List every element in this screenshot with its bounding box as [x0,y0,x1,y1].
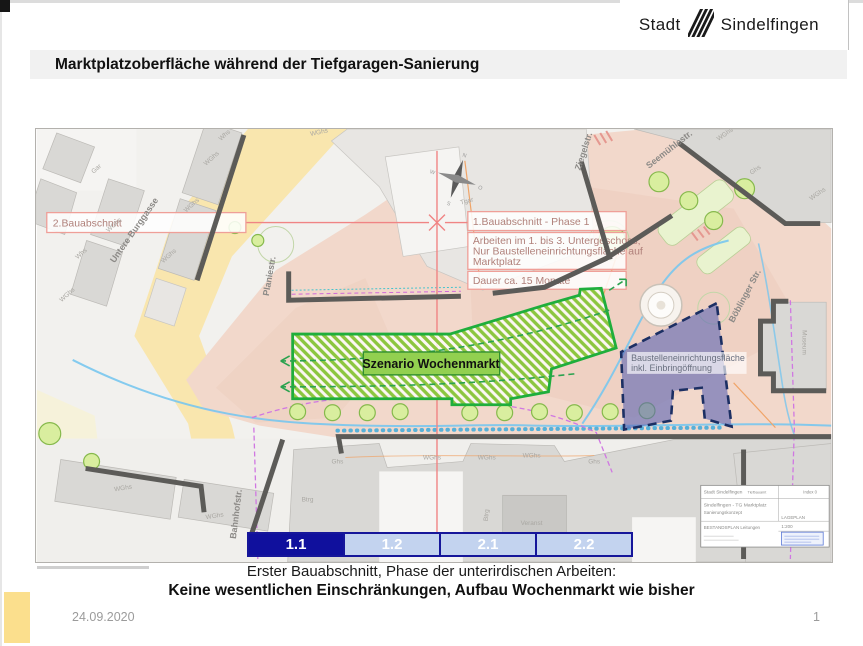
page-title: Marktplatzoberfläche während der Tiefgar… [55,56,479,74]
svg-text:inkl. Einbringöffnung: inkl. Einbringöffnung [631,363,712,373]
zone-wochenmarkt-label: Szenario Wochenmarkt [362,352,499,375]
logo-word-stadt: Stadt [639,15,681,35]
phase-box-2-2: 2.2 [535,532,633,557]
slide-left-border [0,0,2,646]
svg-text:WGhs: WGhs [523,452,541,459]
svg-text:Veranst: Veranst [521,520,543,527]
phase-box-2-1: 2.1 [439,532,537,557]
caption-line-2: Keine wesentlichen Einschränkungen, Aufb… [0,582,863,600]
svg-text:WGhs: WGhs [478,454,496,461]
logo-word-sindelfingen: Sindelfingen [721,15,819,35]
svg-text:Baustelleneinrichtungsfläche: Baustelleneinrichtungsfläche [631,353,745,363]
slide: Stadt Sindelfingen Marktplatzoberfläche … [0,0,863,646]
svg-text:Szenario Wochenmarkt: Szenario Wochenmarkt [362,357,499,371]
fountain [640,284,682,326]
zone-baustelle-label: Baustelleneinrichtungsfläche inkl. Einbr… [627,352,746,374]
phase-bar: 1.1 1.2 2.1 2.2 [247,532,633,557]
slide-corner-mark [0,0,10,12]
svg-text:1:200: 1:200 [781,524,793,529]
svg-text:Stadt Sindelfingen: Stadt Sindelfingen [704,489,743,495]
svg-text:Tiefbauamt: Tiefbauamt [748,490,768,494]
svg-text:Sanierungskonzept: Sanierungskonzept [704,510,743,515]
caption-line-1: Erster Bauabschnitt, Phase der unterirdi… [0,563,863,580]
svg-text:Index 0: Index 0 [803,489,817,494]
footer-date: 24.09.2020 [72,610,135,624]
logo-hatch-icon [688,8,714,43]
plan-titleblock: Stadt Sindelfingen Tiefbauamt Index 0 Si… [701,485,829,547]
svg-text:Ghs: Ghs [588,458,600,465]
highlight-square [4,592,30,643]
svg-text:Btrg: Btrg [302,496,314,503]
svg-text:Arbeiten im 1. bis 3. Unterges: Arbeiten im 1. bis 3. Untergeschoss; [473,236,641,247]
svg-text:WGhs: WGhs [423,454,441,461]
svg-text:Sindelfingen - TG Marktplatz: Sindelfingen - TG Marktplatz [704,502,767,508]
svg-text:1.Bauabschnitt - Phase 1: 1.Bauabschnitt - Phase 1 [473,217,590,228]
svg-text:BESTANDSPLAN Leitungen: BESTANDSPLAN Leitungen [704,525,761,530]
phase-box-1-2: 1.2 [343,532,441,557]
phase-box-1-1: 1.1 [247,532,345,557]
svg-text:Marktplatz: Marktplatz [473,257,521,268]
title-bar: Marktplatzoberfläche während der Tiefgar… [30,50,847,79]
page-number: 1 [813,610,820,624]
svg-text:LAGEPLAN: LAGEPLAN [781,515,805,520]
stadt-sindelfingen-logo: Stadt Sindelfingen [620,0,849,50]
svg-text:Btrg: Btrg [483,509,491,522]
building-label-museum: Museum [800,330,807,355]
site-plan-map: 2.Bauabschnitt 1.Bauabschnitt - Phase 1 … [35,128,833,563]
svg-text:Ghs: Ghs [331,458,343,465]
site-plan-svg: 2.Bauabschnitt 1.Bauabschnitt - Phase 1 … [36,129,832,562]
